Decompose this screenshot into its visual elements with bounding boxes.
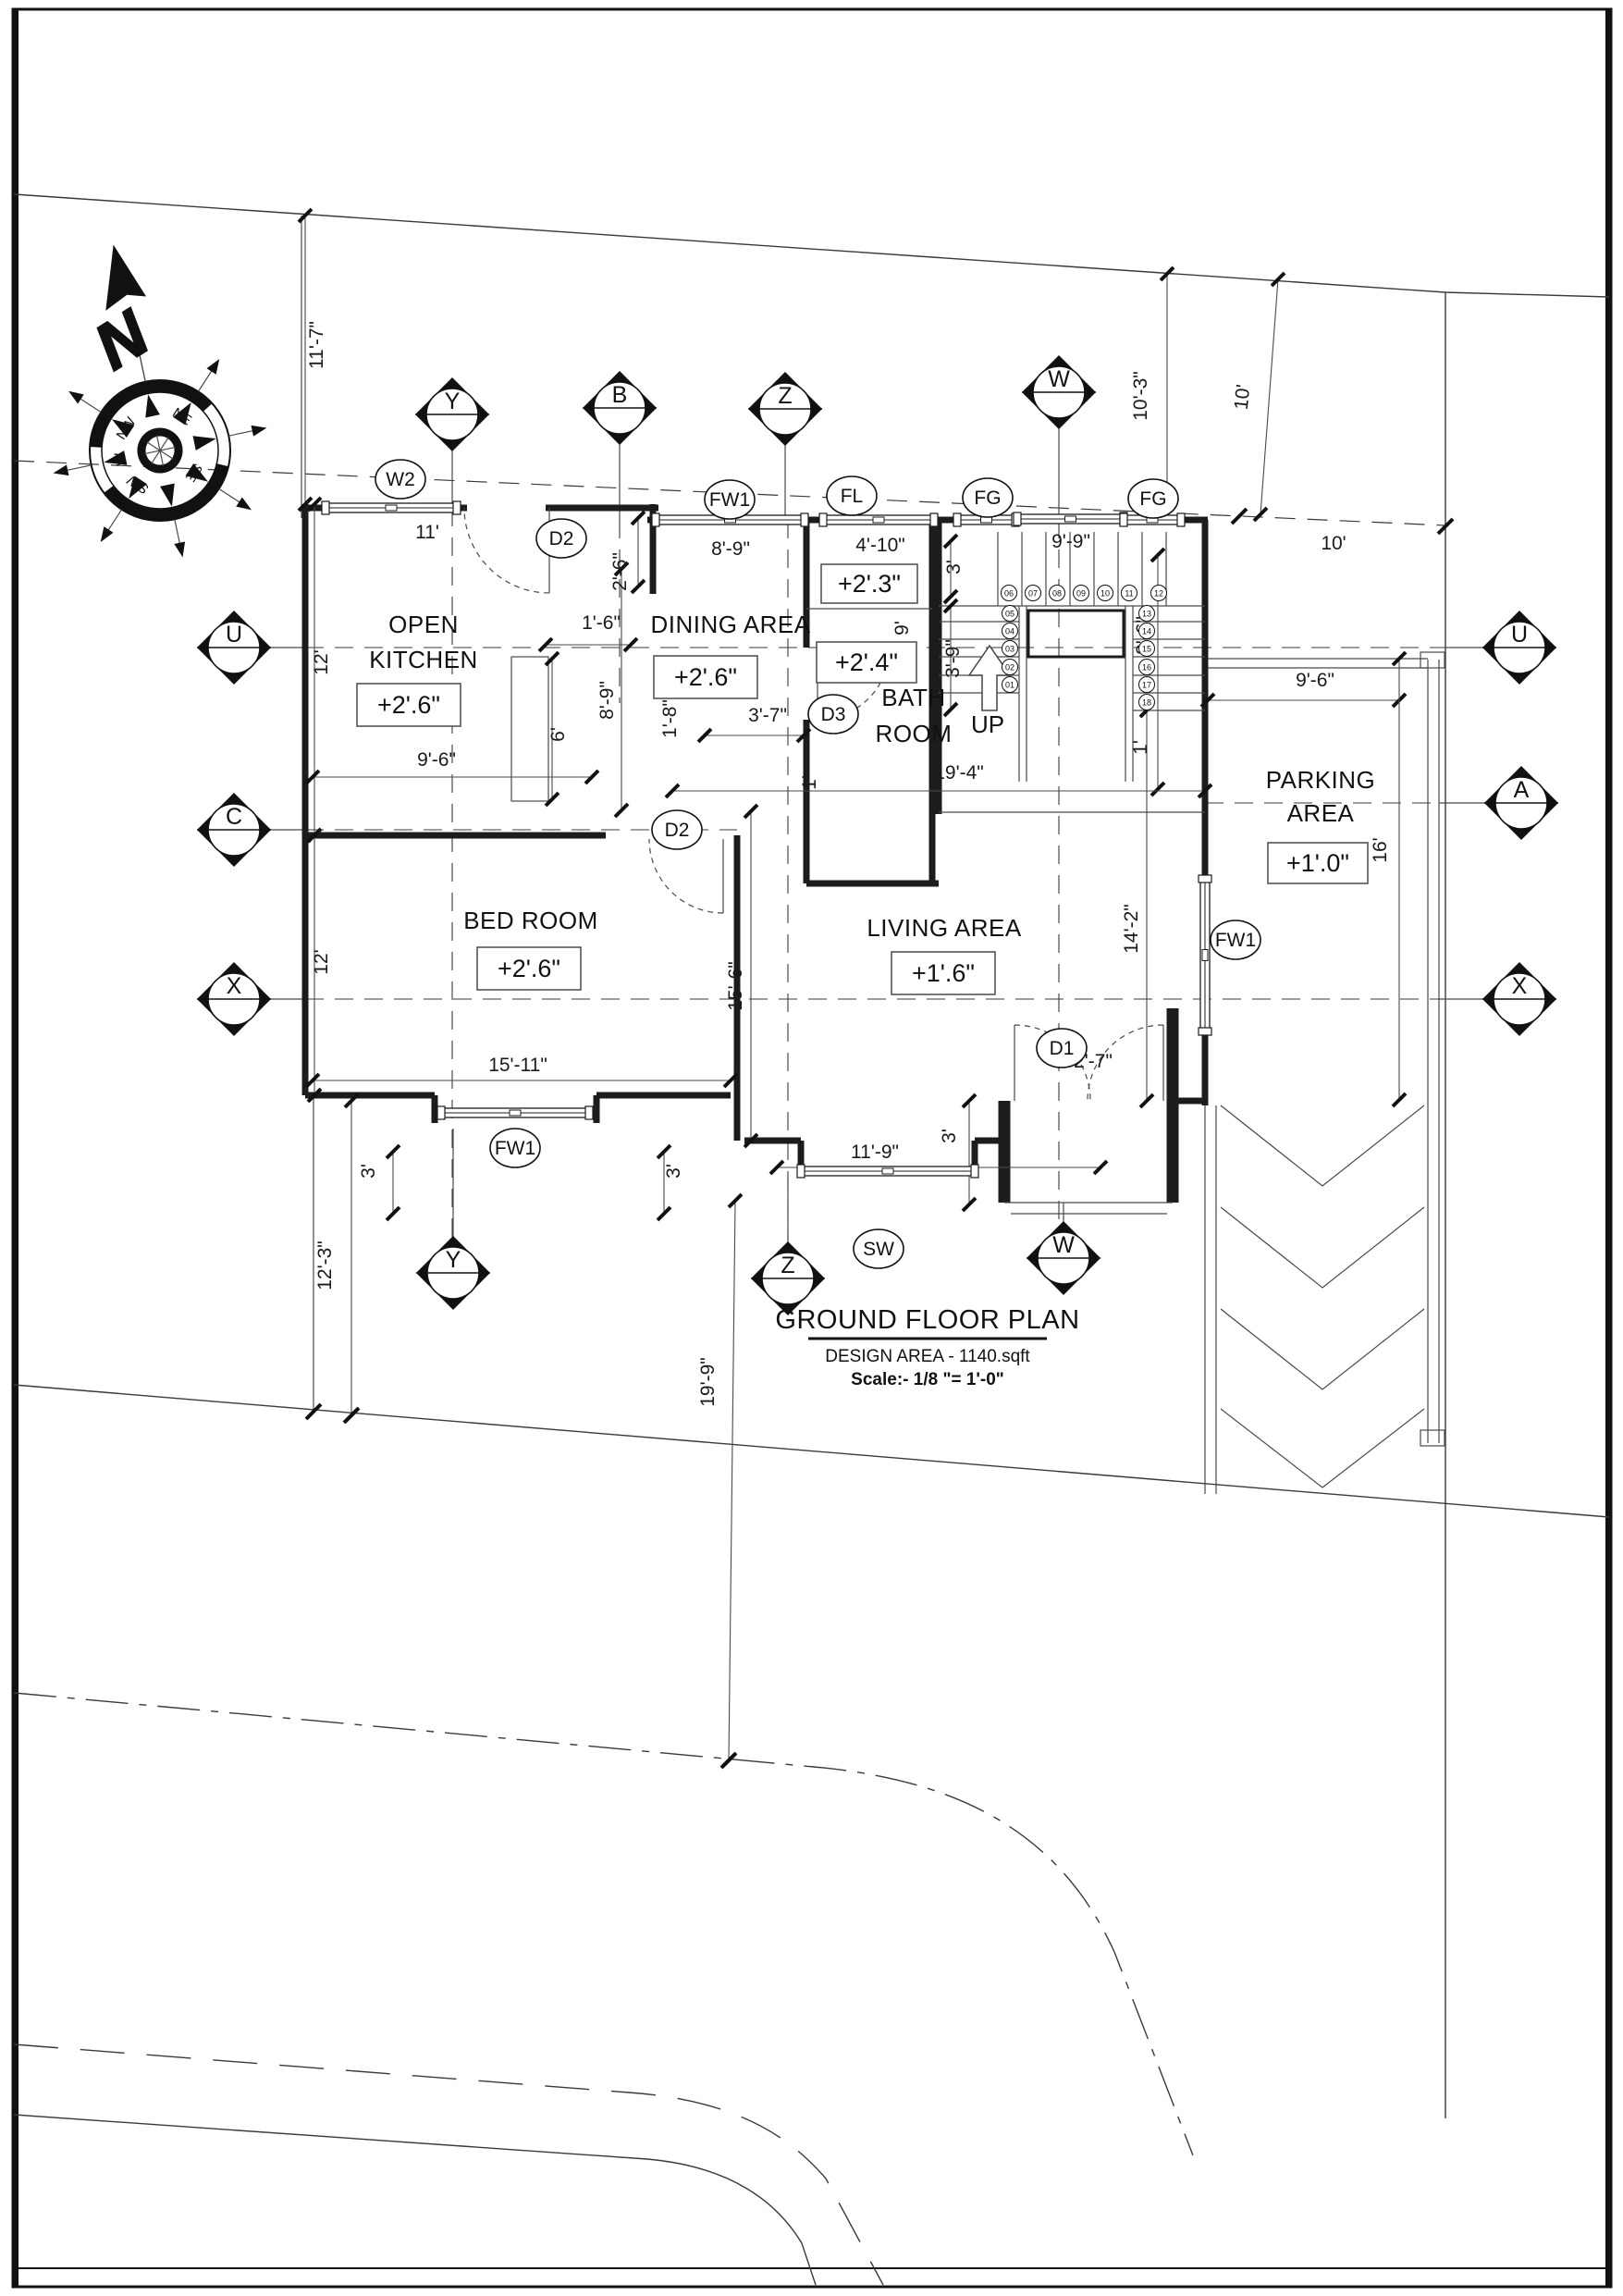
window-glyph bbox=[1014, 512, 1127, 525]
grid-marker-A: A bbox=[1484, 766, 1558, 840]
floor-plan-drawing: UP 11'-7"11'2'-6"1'-6"8'-9"4'-10"9'-9"10… bbox=[0, 0, 1623, 2296]
dimension-label: 1' bbox=[799, 775, 820, 790]
room-parking-area: PARKINGAREA+1'.0" bbox=[1266, 766, 1376, 883]
north-arrow: N bbox=[68, 240, 166, 391]
dimension-label: 12' bbox=[311, 949, 332, 974]
stair-tread-number: 06 bbox=[1004, 589, 1014, 599]
dimension-label: 6' bbox=[547, 727, 569, 742]
driveway-chevrons bbox=[1205, 1105, 1424, 1494]
room-name-label: BED ROOM bbox=[463, 907, 598, 934]
grid-marker-U: U bbox=[1482, 611, 1556, 685]
grid-marker-Z: Z bbox=[748, 372, 822, 446]
level-value-label: +1'.0" bbox=[1286, 849, 1349, 877]
drawing-sheet: UP 11'-7"11'2'-6"1'-6"8'-9"4'-10"9'-9"10… bbox=[0, 0, 1623, 2296]
room-stair-niche: +2'.3" bbox=[821, 564, 917, 603]
dimension-label: 12' bbox=[311, 649, 332, 674]
dimension-label: 19'-9" bbox=[697, 1357, 719, 1407]
dimension-label: 3' bbox=[358, 1164, 379, 1179]
compass-north-letter: N bbox=[82, 296, 161, 383]
dimension-label: 15'-6" bbox=[725, 961, 746, 1011]
stair-tread-number: 18 bbox=[1142, 698, 1151, 708]
tag-label: FW1 bbox=[495, 1138, 535, 1159]
dimension-label: 3'-9" bbox=[942, 639, 964, 678]
compass-point-arrow bbox=[141, 393, 160, 418]
tag-FW1: FW1 bbox=[1211, 920, 1260, 959]
component-tags: W2D2FW1FLFGFGD2D3FW1FW1D1SW bbox=[375, 460, 1260, 1268]
windows bbox=[322, 501, 1211, 1178]
stair-tread-number: 01 bbox=[1005, 681, 1014, 690]
tag-label: FW1 bbox=[709, 489, 750, 511]
tag-FW1: FW1 bbox=[705, 480, 755, 519]
dimension-label: 3' bbox=[663, 1164, 684, 1179]
stair-tread-number: 04 bbox=[1005, 627, 1014, 636]
dimension-lines bbox=[299, 209, 1453, 1768]
dimension-label: 3' bbox=[939, 1129, 960, 1143]
dimension-label: 8'-9" bbox=[711, 538, 750, 560]
grid-marker-Y: Y bbox=[416, 1236, 490, 1310]
parking-east-edge bbox=[1420, 652, 1445, 1446]
dimension-label: 2'-6" bbox=[609, 552, 631, 591]
level-value-label: +1'.6" bbox=[912, 959, 975, 987]
grid-marker-label: B bbox=[612, 382, 628, 408]
dimension-label: 11' bbox=[415, 522, 439, 543]
dimension-label: 10'-3" bbox=[1130, 371, 1151, 421]
walls bbox=[305, 504, 1428, 1214]
grid-marker-label: X bbox=[227, 973, 242, 999]
tag-label: FL bbox=[841, 486, 864, 507]
grid-marker-label: U bbox=[226, 622, 242, 648]
grid-marker-label: Y bbox=[445, 389, 461, 414]
dimension-label: 12'-3" bbox=[314, 1241, 336, 1290]
grid-marker-label: X bbox=[1512, 973, 1528, 999]
room-living-area: LIVING AREA+1'.6" bbox=[867, 914, 1021, 994]
tag-label: FG bbox=[974, 488, 1001, 509]
stair-tread-number: 11 bbox=[1125, 589, 1133, 599]
stair-tread-number: 15 bbox=[1142, 645, 1151, 654]
tag-label: D2 bbox=[549, 528, 574, 549]
level-value-label: +2'.4" bbox=[835, 648, 898, 676]
dimension-label: 9'-9" bbox=[1051, 531, 1090, 552]
tag-label: SW bbox=[863, 1239, 894, 1260]
grid-marker-W: W bbox=[1027, 1221, 1100, 1295]
dimension-label: 11'-7" bbox=[306, 321, 327, 369]
room-open-kitchen: OPENKITCHEN+2'.6" bbox=[357, 611, 478, 726]
window-glyph bbox=[437, 1106, 593, 1119]
stair-tread-number: 09 bbox=[1076, 589, 1086, 599]
stair-tread-number: 17 bbox=[1142, 681, 1151, 690]
dimension-label: 15'-11" bbox=[488, 1055, 547, 1076]
tag-label: D1 bbox=[1050, 1038, 1075, 1059]
room-dining-area: DINING AREA+2'.6" bbox=[650, 611, 810, 698]
grid-marker-U: U bbox=[197, 611, 271, 685]
stair-tread-number: 10 bbox=[1100, 589, 1110, 599]
window-glyph bbox=[1199, 875, 1211, 1035]
compass-point-arrow bbox=[160, 484, 179, 509]
level-value-label: +2'.6" bbox=[498, 955, 560, 982]
grid-marker-label: Z bbox=[778, 383, 792, 409]
room-name-label: OPEN bbox=[388, 611, 459, 638]
dimension-label: 9' bbox=[891, 621, 913, 636]
road-lines bbox=[14, 1693, 1193, 2285]
tag-D2: D2 bbox=[536, 519, 586, 558]
grid-marker-X: X bbox=[197, 962, 271, 1036]
site-boundary bbox=[14, 194, 1609, 2118]
room-name-label: KITCHEN bbox=[369, 646, 478, 673]
stairs-up-label: UP bbox=[971, 710, 1004, 738]
dimension-label: 9'-6" bbox=[417, 749, 456, 771]
dimension-label: 10' bbox=[1231, 384, 1255, 412]
window-glyph bbox=[322, 501, 461, 514]
up-arrow bbox=[969, 646, 1010, 710]
window-glyph bbox=[819, 513, 938, 526]
grid-marker-label: Z bbox=[781, 1253, 794, 1278]
tag-FG: FG bbox=[963, 478, 1013, 517]
scale-note: Scale:- 1/8 "= 1'-0" bbox=[851, 1370, 1004, 1389]
dimension-line bbox=[729, 1201, 735, 1760]
dimension-label: 19'-4" bbox=[934, 762, 984, 784]
window-glyph bbox=[797, 1165, 978, 1178]
room-name-label: DINING AREA bbox=[650, 611, 810, 638]
grid-marker-label: W bbox=[1052, 1232, 1075, 1258]
drawing-title: GROUND FLOOR PLAN bbox=[775, 1305, 1079, 1335]
tag-label: FW1 bbox=[1215, 930, 1256, 951]
dimension-label: 3'-7" bbox=[748, 705, 787, 726]
tag-W2: W2 bbox=[375, 460, 425, 499]
dimension-label: 8'-9" bbox=[596, 681, 618, 720]
grid-marker-X: X bbox=[1482, 962, 1556, 1036]
level-value-label: +2'.6" bbox=[377, 691, 440, 719]
grid-marker-label: W bbox=[1048, 366, 1070, 392]
level-value-label: +2'.3" bbox=[838, 570, 901, 598]
stair-tread-number: 02 bbox=[1005, 663, 1014, 673]
tag-label: D3 bbox=[821, 704, 846, 725]
grid-marker-label: C bbox=[226, 804, 242, 830]
dimension-label: 1'-8" bbox=[659, 699, 681, 738]
stair-tread-number: 12 bbox=[1154, 589, 1163, 599]
tag-SW: SW bbox=[854, 1229, 904, 1268]
room-name-label: LIVING AREA bbox=[867, 914, 1021, 942]
dimension-label: 1' bbox=[1130, 740, 1151, 755]
compass-rose: NNEESESSWWNW N bbox=[9, 221, 289, 580]
dimension-label: 9'-6" bbox=[1296, 670, 1334, 691]
design-area-note: DESIGN AREA - 1140.sqft bbox=[825, 1347, 1030, 1366]
dimension-label: 4'-10" bbox=[855, 535, 905, 556]
tag-FG: FG bbox=[1128, 479, 1178, 518]
stair-tread-number: 05 bbox=[1005, 610, 1014, 619]
dimension-label: 1'-6" bbox=[582, 612, 621, 634]
stair-tread-number: 16 bbox=[1142, 663, 1151, 673]
grid-marker-label: A bbox=[1514, 777, 1530, 803]
dimension-label: 11'-9" bbox=[851, 1142, 899, 1163]
grid-marker-Y: Y bbox=[415, 377, 489, 451]
tag-label: D2 bbox=[665, 820, 690, 841]
level-value-label: +2'.6" bbox=[674, 663, 737, 691]
title-block: GROUND FLOOR PLAN DESIGN AREA - 1140.sqf… bbox=[775, 1305, 1079, 1389]
kitchen-island bbox=[511, 657, 548, 801]
stair-tread-number: 08 bbox=[1052, 589, 1062, 599]
dimension-line bbox=[1260, 279, 1278, 514]
tag-D3: D3 bbox=[808, 695, 858, 734]
room-bed-room: BED ROOM+2'.6" bbox=[463, 907, 598, 990]
dimension-label: 14'-2" bbox=[1121, 904, 1142, 954]
stair-tread-number: 13 bbox=[1142, 610, 1151, 619]
grid-marker-label: U bbox=[1511, 622, 1528, 648]
tag-label: FG bbox=[1139, 488, 1166, 510]
dimension-label: 3' bbox=[943, 560, 965, 574]
tag-label: W2 bbox=[386, 469, 415, 490]
grid-marker-W: W bbox=[1022, 355, 1096, 429]
stair-tread-number: 03 bbox=[1005, 645, 1014, 654]
tag-FL: FL bbox=[827, 476, 877, 515]
stair-tread-number: 14 bbox=[1142, 627, 1151, 636]
compass-point-arrow bbox=[193, 431, 218, 451]
grid-marker-C: C bbox=[197, 793, 271, 867]
tag-FW1: FW1 bbox=[490, 1129, 540, 1167]
room-name-label: ROOM bbox=[876, 720, 953, 747]
grid-marker-Z: Z bbox=[751, 1241, 825, 1315]
grid-marker-label: Y bbox=[446, 1247, 461, 1273]
dimension-label: 10' bbox=[1321, 533, 1346, 554]
grid-marker-B: B bbox=[583, 371, 657, 445]
room-name-label: BATH bbox=[881, 684, 945, 711]
stair-tread-number: 07 bbox=[1028, 589, 1038, 599]
tag-D2: D2 bbox=[652, 810, 702, 849]
room-name-label: PARKING bbox=[1266, 766, 1376, 794]
room-name-label: AREA bbox=[1287, 799, 1355, 827]
dimension-label: 16' bbox=[1370, 837, 1391, 862]
tag-D1: D1 bbox=[1037, 1029, 1087, 1068]
